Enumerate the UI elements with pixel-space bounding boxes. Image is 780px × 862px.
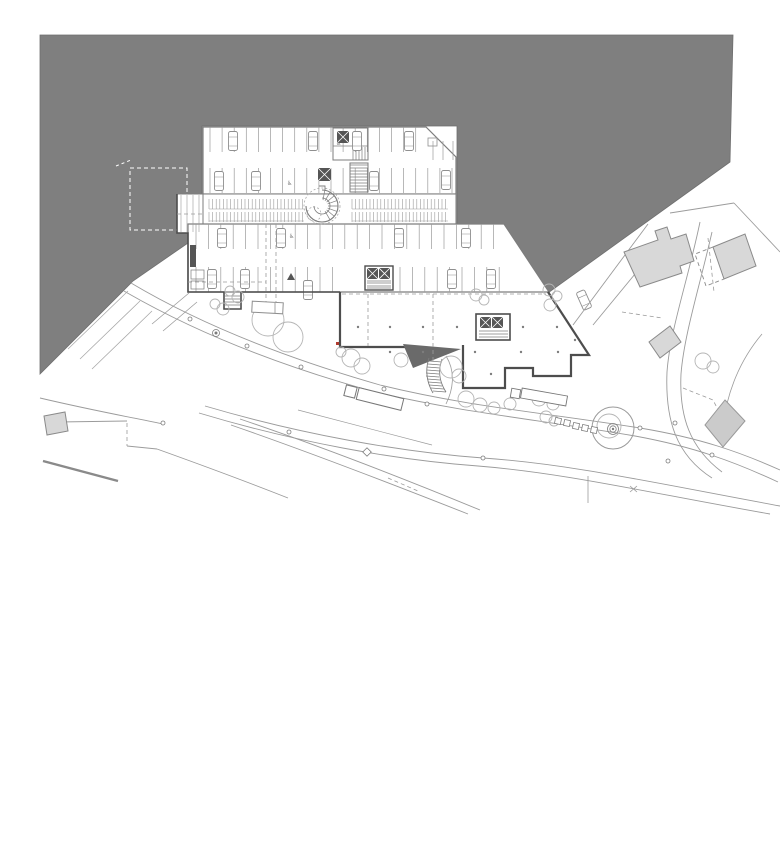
neighbor-building-4 (705, 400, 745, 447)
parked-car (405, 132, 414, 151)
plaza-columns-2 (422, 326, 424, 328)
delivery-truck (252, 301, 284, 314)
car-body (309, 132, 318, 151)
parked-car (395, 229, 404, 248)
plaza-columns-8 (474, 351, 476, 353)
tree (540, 411, 552, 423)
parked-car (208, 270, 217, 289)
plaza-columns-4 (489, 326, 491, 328)
car-body (462, 229, 471, 248)
plaza-columns-3 (456, 326, 458, 328)
car-body (448, 270, 457, 289)
neighbor-building-3 (649, 326, 681, 358)
parked-car (277, 229, 286, 248)
plaza-edge-west (340, 292, 407, 347)
planter-square (563, 419, 570, 426)
tree (544, 299, 556, 311)
parked-car (353, 132, 362, 151)
plaza-columns-6 (556, 326, 558, 328)
survey-node (673, 421, 677, 425)
planter-square (590, 426, 597, 433)
main-road-edge-a (205, 406, 780, 506)
tree (504, 398, 516, 410)
planter-square (581, 424, 588, 431)
car-body (405, 132, 414, 151)
parked-car (442, 171, 451, 190)
car-body (370, 172, 379, 191)
survey-node (382, 387, 386, 391)
main-road-edge-b (199, 413, 770, 514)
survey-node (245, 344, 249, 348)
tree (354, 358, 370, 374)
site-plan-drawing: ♿♿♿ (0, 0, 780, 862)
survey-node (481, 456, 485, 460)
big-tree-trunk-1 (612, 428, 614, 430)
field-boundary-b (127, 446, 157, 449)
drawing-canvas: ♿♿♿ (0, 0, 780, 862)
parked-car (218, 229, 227, 248)
parked-car (462, 229, 471, 248)
parked-car (229, 132, 238, 151)
survey-node (188, 317, 192, 321)
east-shelter (510, 388, 520, 398)
plaza-columns-11 (389, 351, 391, 353)
parcel-dash-e2 (622, 312, 662, 318)
plaza-columns-10 (557, 351, 559, 353)
car-body (395, 229, 404, 248)
car-on-driveway (576, 289, 592, 310)
tree (552, 291, 562, 301)
plaza-columns-9 (520, 351, 522, 353)
survey-node (710, 453, 714, 457)
tree (273, 322, 303, 352)
accessible-parking-icon: ♿ (287, 180, 292, 187)
field-boundary-c (157, 449, 288, 498)
exit-stair-treads (225, 296, 240, 305)
survey-node (299, 365, 303, 369)
car-body (442, 171, 451, 190)
planter-square (572, 422, 579, 429)
tree (488, 402, 500, 414)
car-body (208, 270, 217, 289)
survey-node (425, 402, 429, 406)
survey-node (161, 421, 165, 425)
tree (232, 291, 244, 303)
survey-node (666, 459, 670, 463)
parked-car (252, 172, 261, 191)
tree (695, 353, 711, 369)
plaza-columns-1 (389, 326, 391, 328)
plaza-columns-13 (574, 339, 576, 341)
junction-line (298, 410, 432, 445)
car-body (277, 229, 286, 248)
survey-node (287, 430, 291, 434)
car-body (576, 289, 592, 310)
plaza-columns-5 (522, 326, 524, 328)
survey-node (638, 426, 642, 430)
car-body (304, 281, 313, 300)
plaza-columns-0 (357, 326, 359, 328)
parked-car (487, 270, 496, 289)
car-body (218, 229, 227, 248)
parcel-line-ne (670, 203, 734, 213)
branch-road-edge-b (231, 425, 468, 514)
parked-car (370, 172, 379, 191)
car-body (215, 172, 224, 191)
tree (479, 295, 489, 305)
retaining-wall-long (43, 461, 118, 481)
car-body (229, 132, 238, 151)
parked-car (215, 172, 224, 191)
accessible-parking-icon: ♿ (289, 233, 294, 240)
tree (394, 353, 408, 367)
red-reference-mark (336, 342, 339, 345)
plaza-columns-12 (490, 373, 492, 375)
neighbor-building-5 (44, 412, 68, 435)
tree (210, 299, 220, 309)
street-upper-edge-b (124, 291, 778, 482)
car-body (487, 270, 496, 289)
tree-trunk-dot (215, 332, 218, 335)
car-body (252, 172, 261, 191)
parcel-line (58, 421, 127, 422)
tree (458, 391, 474, 407)
branch-road-edge-a (240, 419, 480, 510)
car-body (241, 270, 250, 289)
parked-car (241, 270, 250, 289)
car-body (353, 132, 362, 151)
plaza-columns-7 (422, 351, 424, 353)
planter-square (554, 417, 561, 424)
garage-top-block (203, 127, 456, 194)
bus-shelter (344, 385, 357, 398)
parked-car (309, 132, 318, 151)
garden-path (446, 356, 452, 404)
neighbor-building-2 (713, 234, 756, 279)
parked-car (448, 270, 457, 289)
bus-platform (356, 388, 404, 411)
neighbor-building-1 (624, 227, 694, 287)
accessible-parking-icon: ♿ (336, 140, 341, 147)
driving-car (304, 281, 313, 300)
survey-diamond (363, 448, 371, 456)
service-room-dark (190, 245, 196, 267)
tree (342, 349, 360, 367)
